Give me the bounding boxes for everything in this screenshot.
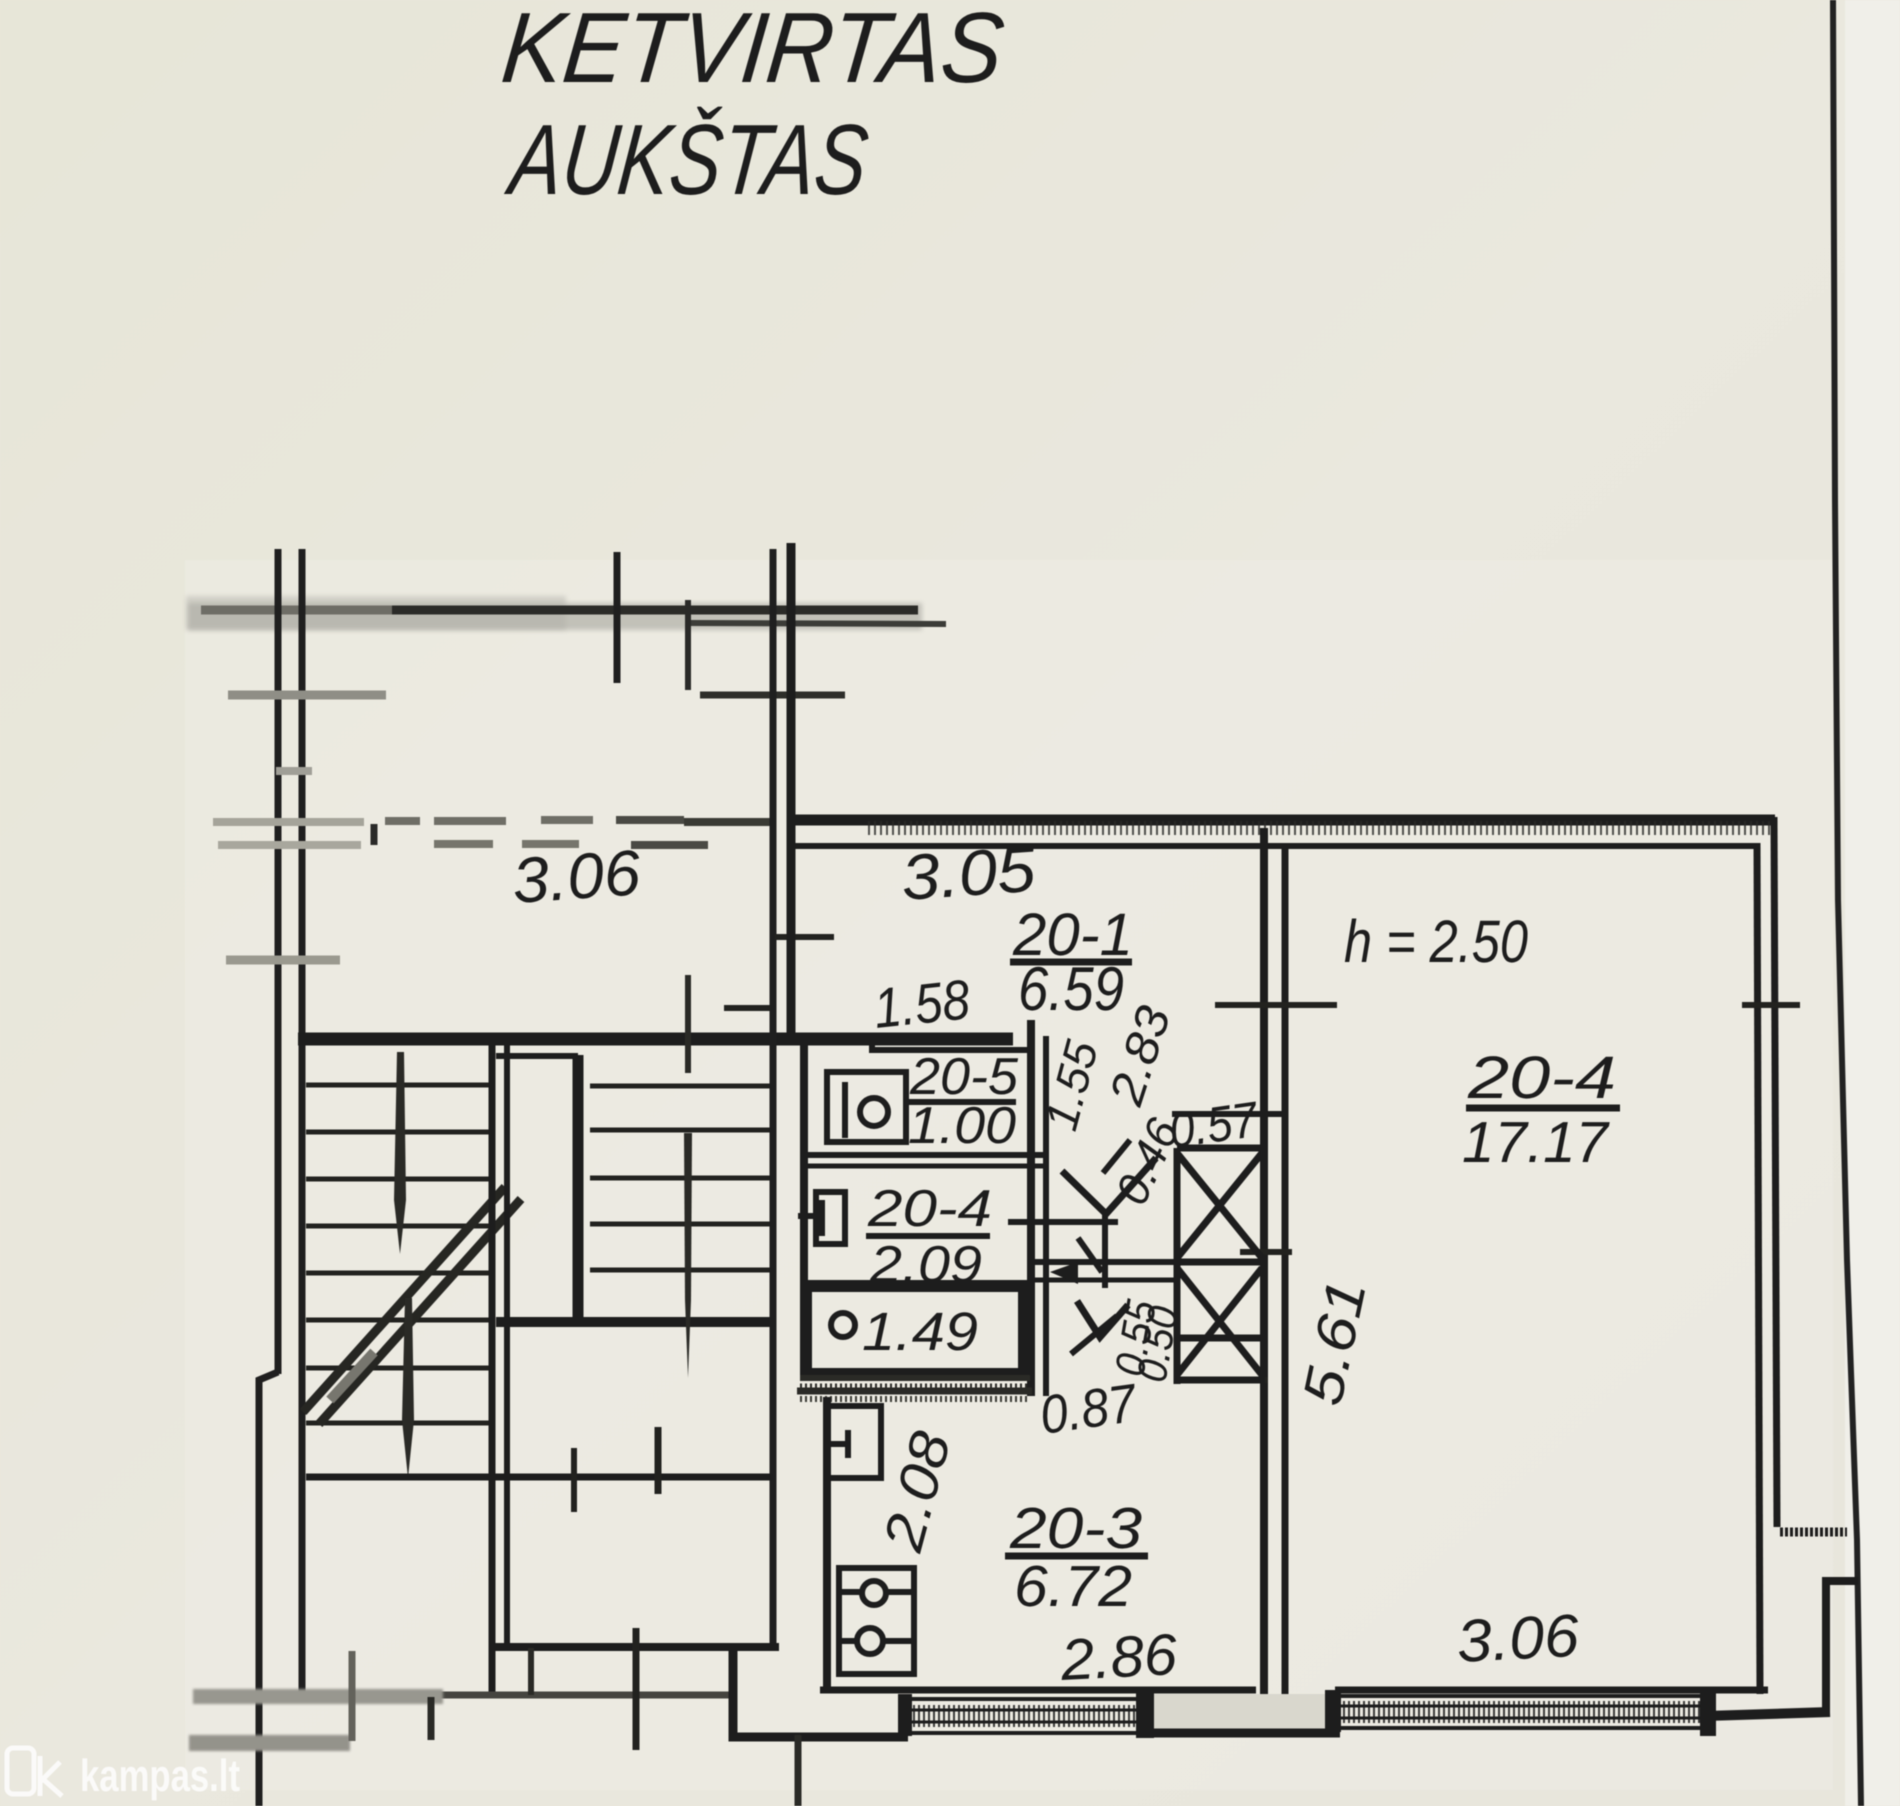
svg-text:KETVIRTAS: KETVIRTAS (497, 0, 1009, 104)
svg-text:kampas.lt: kampas.lt (80, 1750, 240, 1801)
svg-text:2.86: 2.86 (1058, 1622, 1179, 1693)
svg-text:1.00: 1.00 (908, 1097, 1016, 1155)
svg-text:3.06: 3.06 (1455, 1602, 1581, 1675)
svg-text:h = 2.50: h = 2.50 (1344, 908, 1528, 975)
svg-text:3.06: 3.06 (510, 836, 643, 917)
svg-text:AUKŠTAS: AUKŠTAS (501, 104, 873, 216)
svg-text:20-4: 20-4 (867, 1180, 992, 1238)
svg-text:1.58: 1.58 (871, 967, 973, 1040)
svg-text:6.72: 6.72 (1014, 1554, 1132, 1619)
svg-text:20-4: 20-4 (1467, 1044, 1616, 1111)
svg-text:1.49: 1.49 (862, 1302, 978, 1362)
svg-text:17.17: 17.17 (1462, 1110, 1611, 1175)
svg-text:6.59: 6.59 (1018, 955, 1124, 1024)
svg-text:20-3: 20-3 (1009, 1496, 1142, 1561)
